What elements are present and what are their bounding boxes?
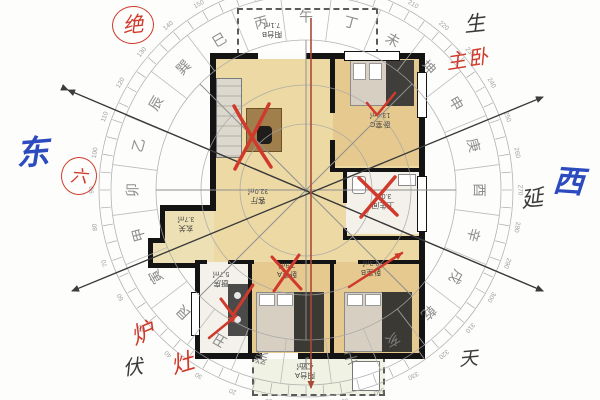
diagonal-sight-line	[68, 90, 543, 291]
red-arrow-kitchen	[209, 316, 236, 338]
note-liu: 六	[70, 167, 88, 185]
red-arrow-bedroom-b	[349, 253, 402, 287]
note-yan: 延	[520, 187, 545, 212]
red-check-bedroom-c	[367, 93, 395, 115]
diagonal-sight-line	[72, 97, 543, 291]
hand-drawn-marks	[0, 0, 600, 400]
note-jue: 绝	[121, 13, 144, 36]
fengshui-floorplan-image: 阳台B 7.1㎡ 卧室C 13.4㎡ 客厅 32.0㎡ 卫生间 3.0㎡ 玄关 …	[0, 0, 600, 400]
note-sheng: 生	[463, 13, 486, 36]
note-dong: 东	[15, 137, 51, 173]
note-fu: 伏	[122, 357, 145, 380]
note-xi: 西	[552, 165, 585, 198]
red-x-bathroom	[359, 177, 397, 217]
note-tian: 天	[458, 349, 479, 370]
red-x-living	[234, 104, 271, 169]
red-check-kitchen	[221, 285, 253, 315]
red-x-bedroom-a	[272, 255, 301, 291]
